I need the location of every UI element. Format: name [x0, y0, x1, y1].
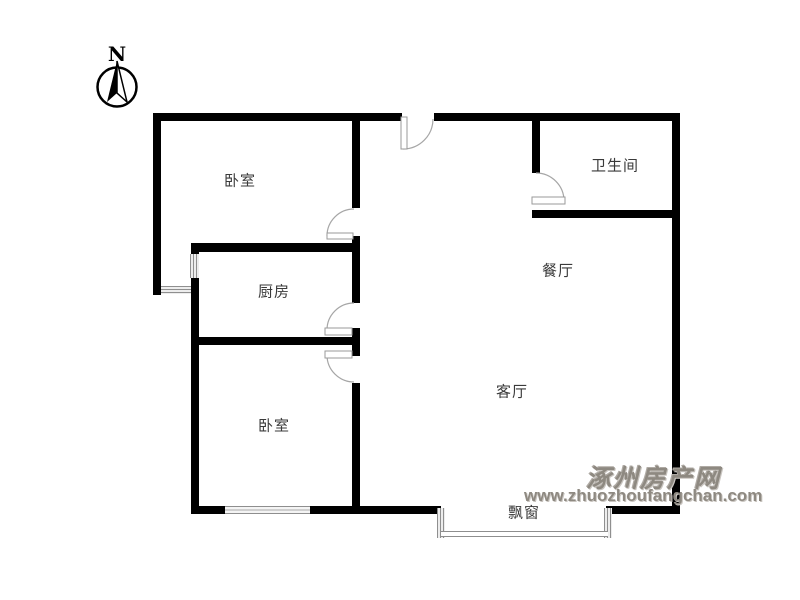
- compass-north-label: N: [108, 42, 126, 66]
- room-label-kitchen: 厨房: [258, 281, 290, 302]
- room-label-dining: 餐厅: [542, 260, 574, 281]
- room-label-bathroom: 卫生间: [591, 155, 639, 176]
- watermark-site-url: www.zhuozhoufangchan.com: [524, 486, 762, 506]
- room-label-bedroom-bottom: 卧室: [258, 415, 290, 436]
- north-compass-icon: [0, 0, 800, 600]
- room-label-bedroom-top: 卧室: [224, 170, 256, 191]
- room-label-living: 客厅: [496, 381, 528, 402]
- floor-plan-canvas: N 卧室 卫生间 厨房 餐厅 卧室 客厅 飘窗 涿州房产网 www.zhuozh…: [0, 0, 800, 600]
